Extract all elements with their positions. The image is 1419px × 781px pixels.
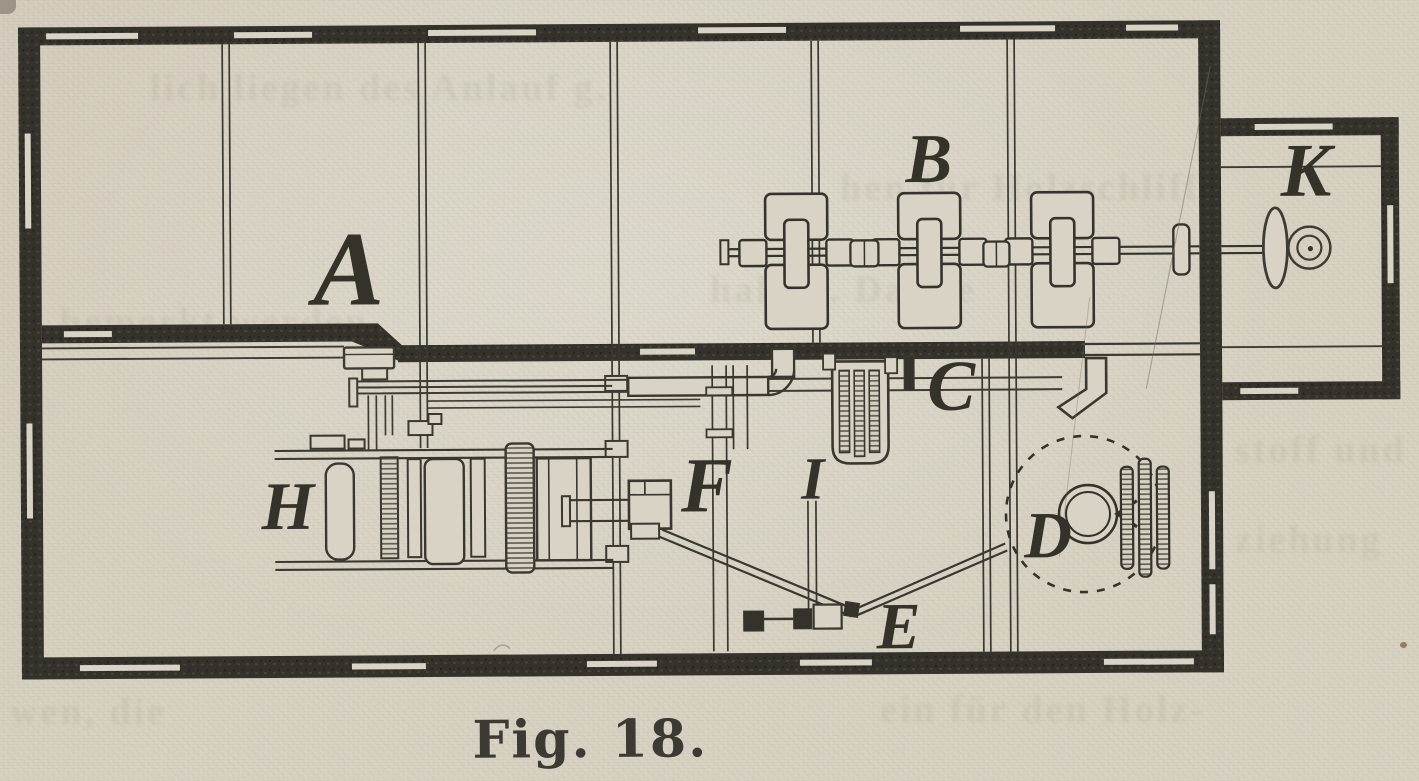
hatched-roller — [506, 443, 535, 572]
shaft-coupling — [850, 240, 878, 266]
sorter-hook — [823, 354, 835, 370]
pipe-flange — [706, 429, 732, 437]
grille-bar — [1121, 467, 1134, 569]
machine-h-grinder — [274, 413, 613, 574]
scanned-book-page: lich liegen des Anlauf g. hen für Holzsc… — [0, 0, 1419, 781]
f-box — [629, 481, 671, 529]
wall-hanger — [904, 356, 914, 390]
figure-drawing: A B C D E F H I K Fig. 18. — [0, 0, 1419, 781]
rail-end-step — [349, 439, 365, 448]
partition-6 — [982, 359, 991, 652]
main-shaft-and-pulleys — [720, 191, 1266, 329]
label-device-i: I — [800, 446, 827, 512]
wall-rails — [42, 347, 344, 360]
rail-end-step — [311, 436, 345, 449]
label-room-a: A — [307, 210, 384, 327]
lower-bar-pair — [427, 399, 700, 408]
wall-spout-funnel — [1058, 358, 1106, 418]
conveyor-junction — [844, 601, 860, 617]
pulley-unit — [739, 193, 854, 329]
left-wall — [18, 27, 44, 679]
top-wall — [18, 20, 1220, 45]
sorter-screen — [869, 370, 880, 452]
roller — [425, 459, 465, 564]
floor-block — [794, 609, 812, 629]
sorter-screen — [839, 370, 850, 452]
masonry-walls — [18, 19, 1402, 679]
pulley-unit — [1005, 192, 1120, 328]
floor-block — [744, 611, 764, 631]
feed-bar-cap — [562, 496, 570, 526]
label-machine-f: F — [680, 441, 734, 528]
f-lower-block — [631, 524, 659, 539]
label-pulleys-b: B — [904, 121, 952, 198]
right-wall — [1198, 20, 1224, 672]
pipe-flange — [706, 387, 732, 395]
label-conveyor-e: E — [875, 590, 920, 663]
partition-pilasters — [605, 376, 628, 562]
bearing-pedestal — [362, 368, 387, 379]
roller-strip — [471, 459, 486, 557]
sorter-hook — [885, 357, 897, 373]
roller-strip — [408, 459, 422, 557]
sorter-screen — [854, 370, 865, 456]
label-duct-c: C — [927, 346, 976, 426]
mid-wall-thin-opening — [1085, 343, 1200, 355]
roller — [326, 464, 355, 560]
shaft-end-cap — [720, 240, 728, 264]
grille-bar — [1157, 467, 1170, 569]
label-annex-k: K — [1279, 129, 1336, 213]
hatched-roller — [381, 457, 399, 558]
top-lever-tip — [428, 414, 441, 424]
shaft-bearing-box — [344, 347, 394, 368]
partition-1 — [222, 44, 231, 324]
bar-end-cap — [349, 378, 357, 406]
pulley-unit — [872, 193, 987, 329]
label-fan-d: D — [1023, 499, 1072, 572]
hanger-posts — [368, 395, 392, 450]
dynamo-horn — [1263, 208, 1330, 288]
label-machine-h: H — [260, 468, 316, 544]
grille-bar — [1139, 459, 1152, 577]
figure-caption: Fig. 18. — [472, 708, 708, 770]
floor-frame — [814, 605, 842, 629]
shaft-coupling — [983, 241, 1009, 266]
shaft-collar-disc — [1173, 224, 1189, 274]
